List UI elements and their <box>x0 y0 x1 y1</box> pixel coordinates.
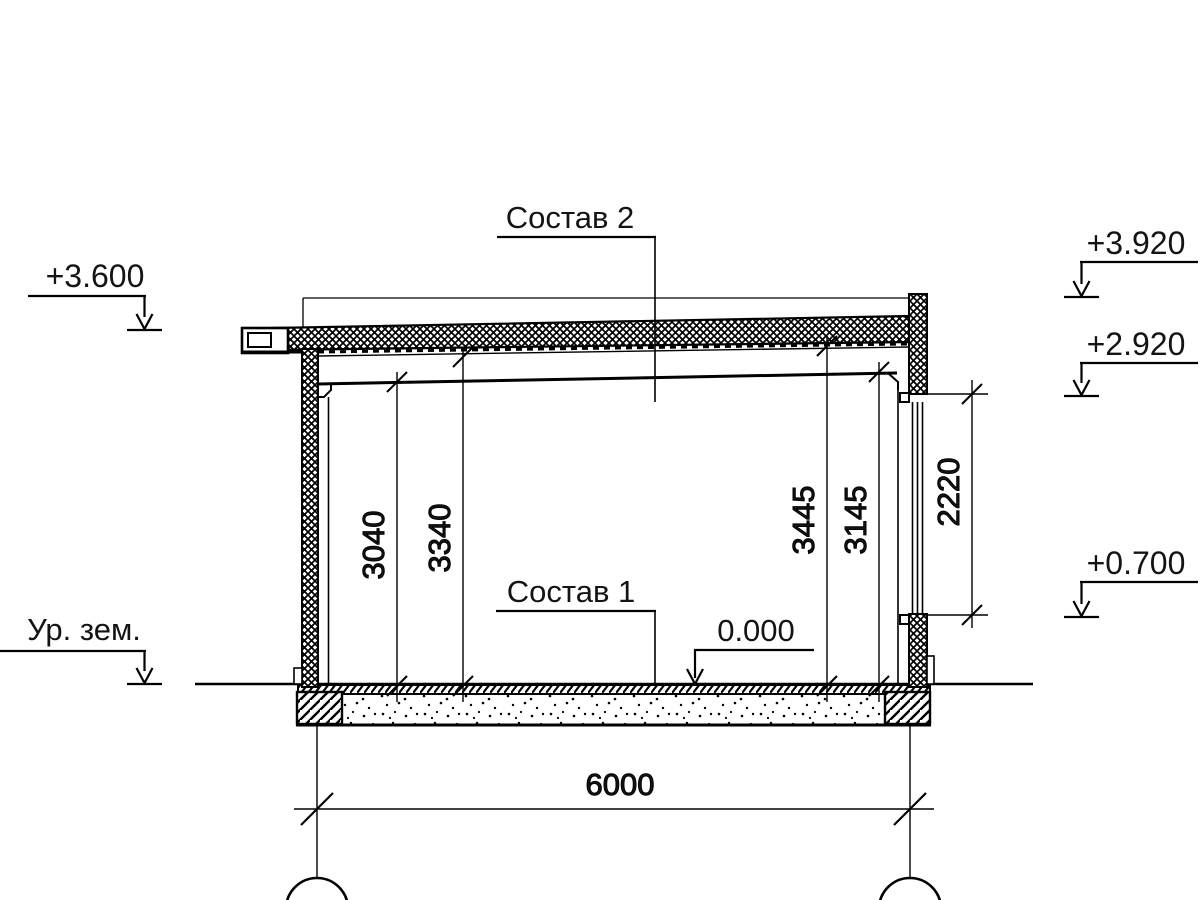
architectural-section-sheet: 3040 3340 3445 3145 2220 6000 <box>0 0 1200 900</box>
ground-level-text: Ур. зем. <box>27 612 141 647</box>
dim-text-3340: 3340 <box>422 504 457 573</box>
marker-ground-level: Ур. зем. <box>0 612 162 684</box>
axis-bubble-left <box>286 878 348 900</box>
floor-composition-text: Состав 1 <box>507 574 636 609</box>
dim-text-3445: 3445 <box>786 486 821 555</box>
dim-3340: 3340 <box>422 347 473 702</box>
roof-composition-text: Состав 2 <box>506 200 635 235</box>
elevation-parapet-text: +3.920 <box>1087 225 1186 261</box>
floor-level-text: 0.000 <box>717 613 795 648</box>
right-wall-upper <box>909 294 927 394</box>
window-right <box>900 393 923 624</box>
dim-2220: 2220 <box>927 380 988 628</box>
elevation-window-head-text: +2.920 <box>1087 326 1186 362</box>
floor-assembly <box>195 684 1033 725</box>
label-floor-composition: Состав 1 <box>496 574 656 686</box>
axis-bubble-right <box>879 878 941 900</box>
left-wall <box>302 349 318 687</box>
window-head-block <box>900 393 909 402</box>
dim-6000: 6000 <box>286 724 941 900</box>
left-wall-plinth <box>294 668 302 684</box>
elevation-window-head-right: +2.920 <box>1064 326 1198 396</box>
subbase-stipple <box>342 694 885 724</box>
roof-assembly <box>242 298 910 356</box>
left-corbel <box>318 384 331 397</box>
foundation-left <box>297 692 342 724</box>
right-corbel <box>889 374 898 390</box>
right-wall-lower <box>909 614 927 687</box>
elevation-window-sill-right: +0.700 <box>1064 545 1198 617</box>
dim-text-2220: 2220 <box>931 458 966 527</box>
elevation-roof-left-text: +3.600 <box>46 258 145 294</box>
dim-text-6000: 6000 <box>586 767 655 802</box>
dim-text-3040: 3040 <box>356 511 391 580</box>
dim-text-3145: 3145 <box>838 486 873 555</box>
marker-floor-level: 0.000 <box>687 613 814 684</box>
window-sill-block <box>900 615 909 624</box>
right-wall-plinth <box>927 656 934 684</box>
elevation-parapet-right: +3.920 <box>1064 225 1198 297</box>
elevation-roof-left: +3.600 <box>28 258 162 330</box>
section-drawing: 3040 3340 3445 3145 2220 6000 <box>0 0 1200 900</box>
foundation-right <box>885 692 930 724</box>
dim-3040: 3040 <box>356 372 407 702</box>
label-roof-composition: Состав 2 <box>497 200 656 402</box>
dim-3145: 3145 <box>838 362 889 702</box>
elevation-window-sill-text: +0.700 <box>1087 545 1186 581</box>
fascia-gutter-inner <box>248 333 271 347</box>
